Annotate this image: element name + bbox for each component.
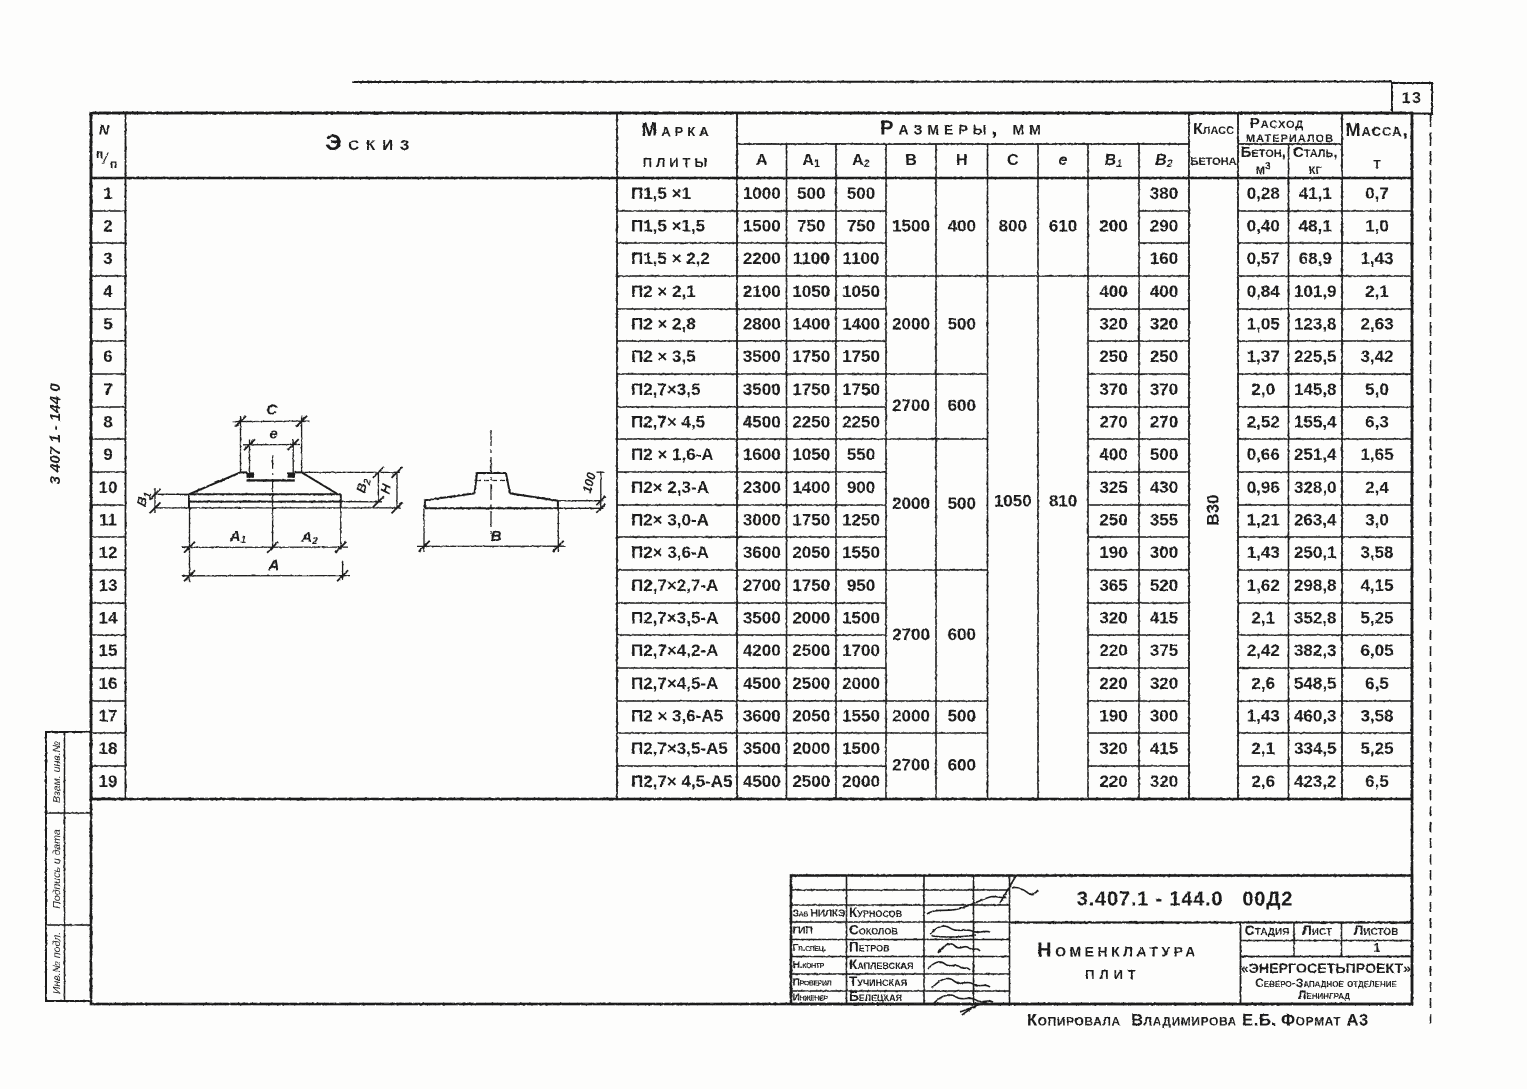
svg-text:320: 320	[1099, 314, 1127, 333]
svg-text:19: 19	[99, 772, 118, 791]
svg-text:1050: 1050	[994, 491, 1032, 510]
svg-text:250,1: 250,1	[1294, 543, 1337, 562]
svg-text:Н: Н	[377, 482, 394, 496]
svg-text:Эскиз: Эскиз	[326, 130, 417, 155]
svg-text:1500: 1500	[743, 216, 781, 235]
svg-text:2,6: 2,6	[1251, 674, 1275, 693]
svg-text:15: 15	[99, 641, 118, 660]
svg-text:270: 270	[1099, 412, 1127, 431]
svg-text:2500: 2500	[792, 674, 830, 693]
svg-text:13: 13	[1402, 90, 1423, 107]
svg-text:300: 300	[1150, 706, 1178, 725]
svg-text:1600: 1600	[743, 445, 781, 464]
svg-text:С: С	[1007, 152, 1019, 169]
svg-text:365: 365	[1099, 576, 1127, 595]
svg-text:190: 190	[1099, 543, 1127, 562]
svg-text:500: 500	[1150, 445, 1178, 464]
svg-text:1250: 1250	[842, 510, 880, 529]
svg-text:Копировала Владимирова Е.Б.: Копировала Владимирова Е.Б.	[1027, 1011, 1277, 1029]
svg-text:Инв.№ подл.: Инв.№ подл.	[51, 932, 63, 994]
svg-text:810: 810	[1049, 491, 1077, 510]
svg-text:1750: 1750	[792, 347, 830, 366]
svg-text:1: 1	[103, 184, 112, 203]
svg-text:0,66: 0,66	[1247, 445, 1280, 464]
svg-text:5,25: 5,25	[1360, 608, 1393, 627]
svg-text:2500: 2500	[792, 772, 830, 791]
svg-text:2500: 2500	[792, 641, 830, 660]
svg-text:17: 17	[99, 706, 118, 725]
svg-text:250: 250	[1150, 347, 1178, 366]
svg-text:48,1: 48,1	[1299, 216, 1332, 235]
svg-text:2700: 2700	[892, 625, 930, 644]
svg-text:П2 × 2,8: П2 × 2,8	[631, 314, 696, 333]
svg-text:2200: 2200	[743, 249, 781, 268]
svg-text:460,3: 460,3	[1294, 706, 1337, 725]
svg-text:325: 325	[1099, 478, 1127, 497]
svg-text:220: 220	[1099, 641, 1127, 660]
svg-text:400: 400	[1150, 282, 1178, 301]
svg-text:Белецкая: Белецкая	[849, 989, 902, 1004]
svg-text:0,40: 0,40	[1247, 216, 1280, 235]
svg-text:5: 5	[103, 314, 112, 333]
svg-text:Взам. инв.№: Взам. инв.№	[51, 741, 63, 803]
svg-text:1,21: 1,21	[1247, 510, 1280, 529]
svg-text:4,15: 4,15	[1360, 576, 1393, 595]
svg-text:5,0: 5,0	[1365, 380, 1389, 399]
svg-text:200: 200	[1099, 216, 1127, 235]
svg-text:2700: 2700	[892, 396, 930, 415]
svg-text:4: 4	[103, 282, 113, 301]
svg-text:1,62: 1,62	[1247, 576, 1280, 595]
svg-text:2000: 2000	[842, 674, 880, 693]
svg-text:2000: 2000	[792, 608, 830, 627]
svg-text:270: 270	[1150, 412, 1178, 431]
svg-text:1,05: 1,05	[1247, 314, 1280, 333]
svg-text:382,3: 382,3	[1294, 641, 1337, 660]
svg-text:320: 320	[1150, 674, 1178, 693]
svg-text:320: 320	[1099, 739, 1127, 758]
svg-text:500: 500	[847, 184, 875, 203]
svg-text:220: 220	[1099, 674, 1127, 693]
svg-text:е: е	[1059, 152, 1068, 169]
svg-text:П1,5 ×1: П1,5 ×1	[631, 184, 691, 203]
svg-text:600: 600	[948, 625, 976, 644]
svg-text:3500: 3500	[743, 608, 781, 627]
svg-text:1,0: 1,0	[1365, 216, 1389, 235]
svg-text:Курносов: Курносов	[849, 905, 903, 920]
svg-text:1050: 1050	[842, 282, 880, 301]
svg-text:500: 500	[948, 494, 976, 513]
svg-text:2000: 2000	[792, 739, 830, 758]
svg-text:2: 2	[103, 216, 112, 235]
svg-text:1050: 1050	[792, 282, 830, 301]
svg-text:П1,5 ×1,5: П1,5 ×1,5	[631, 216, 705, 235]
svg-text:Н.контр: Н.контр	[793, 959, 825, 971]
svg-text:320: 320	[1099, 608, 1127, 627]
svg-text:2000: 2000	[892, 494, 930, 513]
svg-text:В1: В1	[1105, 152, 1123, 170]
svg-text:430: 430	[1150, 478, 1178, 497]
svg-text:Гл.спец.: Гл.спец.	[793, 942, 827, 954]
svg-text:13: 13	[99, 576, 118, 595]
svg-text:А2: А2	[300, 529, 318, 547]
svg-text:500: 500	[797, 184, 825, 203]
svg-text:4500: 4500	[743, 772, 781, 791]
svg-text:1750: 1750	[792, 380, 830, 399]
svg-text:0,84: 0,84	[1247, 282, 1281, 301]
svg-text:145,8: 145,8	[1294, 380, 1337, 399]
svg-text:334,5: 334,5	[1294, 739, 1337, 758]
svg-text:т: т	[1373, 153, 1381, 172]
svg-text:п: п	[110, 157, 117, 171]
svg-text:9: 9	[103, 445, 112, 464]
svg-text:750: 750	[797, 216, 825, 235]
svg-text:П2 × 3,5: П2 × 3,5	[631, 347, 696, 366]
svg-text:1050: 1050	[792, 445, 830, 464]
svg-text:101,9: 101,9	[1294, 282, 1337, 301]
svg-text:250: 250	[1099, 510, 1127, 529]
svg-text:3 407 1 - 144 0: 3 407 1 - 144 0	[47, 383, 64, 485]
svg-text:1750: 1750	[842, 380, 880, 399]
svg-text:Формат А3: Формат А3	[1281, 1011, 1369, 1029]
svg-text:Петров: Петров	[849, 940, 890, 955]
svg-text:В: В	[491, 528, 502, 545]
svg-text:1750: 1750	[842, 347, 880, 366]
svg-text:1550: 1550	[842, 543, 880, 562]
svg-text:328,0: 328,0	[1294, 478, 1337, 497]
svg-text:1,43: 1,43	[1247, 706, 1280, 725]
svg-text:1750: 1750	[792, 510, 830, 529]
svg-text:ГИП: ГИП	[793, 925, 813, 937]
svg-text:1000: 1000	[743, 184, 781, 203]
svg-text:1500: 1500	[842, 608, 880, 627]
svg-text:3.407.1 - 144.0 00Д2: 3.407.1 - 144.0 00Д2	[1077, 888, 1293, 910]
svg-text:П2,7×3,5: П2,7×3,5	[631, 380, 700, 399]
svg-text:Ленинград: Ленинград	[1298, 988, 1350, 1002]
svg-text:380: 380	[1150, 184, 1178, 203]
svg-text:В2: В2	[353, 476, 374, 495]
svg-text:190: 190	[1099, 706, 1127, 725]
svg-text:423,2: 423,2	[1294, 772, 1337, 791]
svg-text:400: 400	[948, 216, 976, 235]
svg-text:375: 375	[1150, 641, 1178, 660]
svg-text:5,25: 5,25	[1360, 739, 1393, 758]
svg-text:14: 14	[99, 608, 118, 627]
svg-text:2,52: 2,52	[1247, 412, 1280, 431]
svg-text:П2 × 3,6-А5: П2 × 3,6-А5	[631, 706, 723, 725]
svg-text:Сталь,: Сталь,	[1293, 144, 1338, 161]
svg-text:П2,7× 4,5: П2,7× 4,5	[631, 412, 705, 431]
svg-text:6,3: 6,3	[1365, 412, 1389, 431]
svg-text:Стадия: Стадия	[1245, 922, 1290, 938]
svg-text:800: 800	[999, 216, 1027, 235]
svg-text:N: N	[99, 122, 110, 138]
svg-text:Номенклатура: Номенклатура	[1037, 939, 1199, 961]
svg-text:1400: 1400	[792, 478, 830, 497]
svg-text:В2: В2	[1155, 152, 1173, 170]
svg-text:2,42: 2,42	[1247, 641, 1280, 660]
svg-text:1,43: 1,43	[1247, 543, 1280, 562]
svg-text:400: 400	[1099, 282, 1127, 301]
svg-text:6,05: 6,05	[1360, 641, 1393, 660]
svg-text:П2× 3,0-А: П2× 3,0-А	[631, 510, 709, 529]
svg-text:2,63: 2,63	[1360, 314, 1393, 333]
svg-text:10: 10	[99, 478, 118, 497]
svg-text:1550: 1550	[842, 706, 880, 725]
svg-text:600: 600	[948, 396, 976, 415]
svg-text:Листов: Листов	[1354, 922, 1399, 938]
svg-text:2700: 2700	[743, 576, 781, 595]
svg-text:3: 3	[103, 249, 112, 268]
svg-text:16: 16	[99, 674, 118, 693]
svg-text:1: 1	[1374, 941, 1381, 955]
svg-text:2100: 2100	[743, 282, 781, 301]
svg-text:2300: 2300	[743, 478, 781, 497]
svg-text:1400: 1400	[842, 314, 880, 333]
svg-text:П2,7×4,2-А: П2,7×4,2-А	[631, 641, 718, 660]
svg-text:550: 550	[847, 445, 875, 464]
svg-text:Проверил: Проверил	[793, 976, 832, 988]
svg-text:«ЭНЕРГОСЕТЬПРОЕКТ»: «ЭНЕРГОСЕТЬПРОЕКТ»	[1241, 961, 1411, 977]
svg-text:Н: Н	[956, 152, 968, 169]
svg-text:плиты: плиты	[643, 151, 711, 172]
svg-text:1500: 1500	[892, 216, 930, 235]
svg-text:290: 290	[1150, 216, 1178, 235]
svg-text:950: 950	[847, 576, 875, 595]
svg-text:А: А	[267, 557, 280, 574]
svg-text:А: А	[756, 152, 768, 169]
svg-text:8: 8	[103, 412, 112, 431]
svg-text:155,4: 155,4	[1294, 412, 1337, 431]
svg-text:225,5: 225,5	[1294, 347, 1337, 366]
svg-text:2250: 2250	[792, 412, 830, 431]
svg-text:1,65: 1,65	[1360, 445, 1393, 464]
svg-text:320: 320	[1150, 772, 1178, 791]
svg-text:П1,5 × 2,2: П1,5 × 2,2	[631, 249, 710, 268]
svg-text:Инженер: Инженер	[793, 991, 829, 1003]
svg-text:2,6: 2,6	[1251, 772, 1275, 791]
svg-text:41,1: 41,1	[1299, 184, 1332, 203]
svg-text:298,8: 298,8	[1294, 576, 1337, 595]
svg-text:548,5: 548,5	[1294, 674, 1337, 693]
svg-text:900: 900	[847, 478, 875, 497]
svg-text:плит: плит	[1085, 963, 1141, 984]
svg-text:П2,7×3,5-А5: П2,7×3,5-А5	[631, 739, 728, 758]
svg-text:18: 18	[99, 739, 118, 758]
svg-text:251,4: 251,4	[1294, 445, 1337, 464]
svg-text:220: 220	[1099, 772, 1127, 791]
svg-text:2,4: 2,4	[1365, 478, 1389, 497]
svg-text:160: 160	[1150, 249, 1178, 268]
svg-text:Класс: Класс	[1193, 121, 1234, 138]
svg-text:1400: 1400	[792, 314, 830, 333]
svg-text:11: 11	[99, 510, 117, 529]
svg-text:3600: 3600	[743, 706, 781, 725]
svg-text:250: 250	[1099, 347, 1127, 366]
svg-text:П2× 3,6-А: П2× 3,6-А	[631, 543, 709, 562]
svg-text:3,0: 3,0	[1365, 510, 1389, 529]
svg-text:П2 × 2,1: П2 × 2,1	[631, 282, 696, 301]
svg-text:П2,7× 4,5-А5: П2,7× 4,5-А5	[631, 772, 733, 791]
svg-text:А2: А2	[852, 152, 870, 170]
svg-text:400: 400	[1099, 445, 1127, 464]
svg-text:0,28: 0,28	[1247, 184, 1280, 203]
svg-text:2,1: 2,1	[1365, 282, 1389, 301]
svg-text:е: е	[269, 425, 277, 442]
svg-text:7: 7	[103, 380, 112, 399]
svg-text:2050: 2050	[792, 706, 830, 725]
svg-text:Марка: Марка	[641, 120, 712, 141]
svg-text:2050: 2050	[792, 543, 830, 562]
svg-text:Размеры, мм: Размеры, мм	[880, 117, 1046, 139]
svg-text:2250: 2250	[842, 412, 880, 431]
svg-text:750: 750	[847, 216, 875, 235]
svg-text:415: 415	[1150, 608, 1178, 627]
svg-text:3000: 3000	[743, 510, 781, 529]
svg-text:3600: 3600	[743, 543, 781, 562]
svg-text:600: 600	[948, 755, 976, 774]
svg-text:А1: А1	[229, 528, 247, 546]
svg-text:12: 12	[99, 543, 118, 562]
svg-text:C: C	[266, 401, 278, 418]
svg-text:520: 520	[1150, 576, 1178, 595]
svg-text:бетона: бетона	[1190, 152, 1236, 169]
svg-text:1750: 1750	[792, 576, 830, 595]
svg-text:2,1: 2,1	[1251, 608, 1275, 627]
svg-text:6: 6	[103, 347, 112, 366]
svg-text:1700: 1700	[842, 641, 880, 660]
svg-text:3500: 3500	[743, 347, 781, 366]
svg-text:2000: 2000	[892, 314, 930, 333]
svg-text:2800: 2800	[743, 314, 781, 333]
svg-text:100: 100	[580, 471, 599, 495]
svg-text:0,7: 0,7	[1365, 184, 1389, 203]
svg-text:6,5: 6,5	[1365, 772, 1389, 791]
svg-text:1500: 1500	[842, 739, 880, 758]
svg-text:3500: 3500	[743, 739, 781, 758]
svg-text:П2,7×4,5-А: П2,7×4,5-А	[631, 674, 718, 693]
svg-text:/: /	[102, 151, 109, 168]
svg-text:2,1: 2,1	[1251, 739, 1275, 758]
svg-text:П2,7×2,7-А: П2,7×2,7-А	[631, 576, 718, 595]
svg-text:В30: В30	[1203, 494, 1222, 525]
svg-text:355: 355	[1150, 510, 1178, 529]
svg-text:П2× 2,3-А: П2× 2,3-А	[631, 478, 709, 497]
svg-text:320: 320	[1150, 314, 1178, 333]
svg-text:В: В	[905, 152, 917, 169]
svg-text:0,96: 0,96	[1247, 478, 1280, 497]
svg-text:4500: 4500	[743, 412, 781, 431]
svg-text:2,0: 2,0	[1251, 380, 1275, 399]
svg-text:2000: 2000	[892, 706, 930, 725]
svg-text:2700: 2700	[892, 755, 930, 774]
svg-text:П2 × 1,6-А: П2 × 1,6-А	[631, 445, 714, 464]
svg-text:3,42: 3,42	[1360, 347, 1393, 366]
svg-text:352,8: 352,8	[1294, 608, 1337, 627]
svg-text:Зав НИЛКЭ: Зав НИЛКЭ	[793, 907, 846, 919]
svg-text:6,5: 6,5	[1365, 674, 1389, 693]
svg-text:1100: 1100	[843, 249, 880, 268]
svg-text:Масса,: Масса,	[1346, 120, 1409, 140]
svg-text:4500: 4500	[743, 674, 781, 693]
svg-text:П2,7×3,5-А: П2,7×3,5-А	[631, 608, 718, 627]
svg-text:м3: м3	[1256, 161, 1271, 178]
svg-text:Подпись и дата: Подпись и дата	[51, 829, 63, 909]
svg-text:Тучинская: Тучинская	[849, 974, 907, 989]
svg-text:263,4: 263,4	[1294, 510, 1337, 529]
svg-text:370: 370	[1150, 380, 1178, 399]
svg-text:370: 370	[1099, 380, 1127, 399]
svg-text:Лист: Лист	[1302, 922, 1332, 938]
svg-text:300: 300	[1150, 543, 1178, 562]
svg-text:А1: А1	[802, 152, 820, 170]
svg-text:В1: В1	[133, 489, 154, 508]
svg-text:123,8: 123,8	[1294, 314, 1337, 333]
svg-text:415: 415	[1150, 739, 1178, 758]
svg-text:3,58: 3,58	[1360, 706, 1393, 725]
svg-text:610: 610	[1049, 216, 1077, 235]
svg-text:3,58: 3,58	[1360, 543, 1393, 562]
svg-text:Каплевская: Каплевская	[849, 957, 914, 972]
svg-text:1100: 1100	[793, 249, 830, 268]
svg-text:кг: кг	[1309, 161, 1323, 178]
svg-text:0,57: 0,57	[1247, 249, 1280, 268]
svg-text:500: 500	[948, 706, 976, 725]
svg-text:2000: 2000	[842, 772, 880, 791]
svg-text:1,43: 1,43	[1360, 249, 1393, 268]
svg-text:4200: 4200	[743, 641, 781, 660]
svg-text:3500: 3500	[743, 380, 781, 399]
svg-text:68,9: 68,9	[1299, 249, 1332, 268]
svg-text:500: 500	[948, 314, 976, 333]
svg-text:1,37: 1,37	[1247, 347, 1280, 366]
svg-text:Бетон,: Бетон,	[1241, 144, 1286, 161]
svg-text:Соколов: Соколов	[849, 922, 898, 937]
